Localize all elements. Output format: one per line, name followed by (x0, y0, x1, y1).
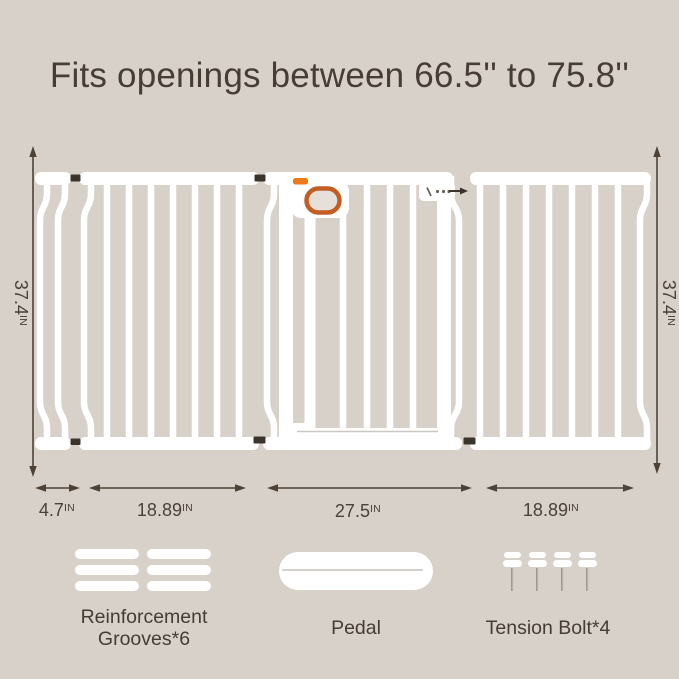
door-right-post (437, 172, 451, 450)
height-label-right: 37.4IN (657, 258, 679, 348)
groove-bar (75, 549, 139, 559)
pedal-graphic (279, 552, 433, 590)
tension-bolt-graphic (579, 552, 596, 591)
gate-illustration (35, 172, 651, 450)
product-infographic: Fits openings between 66.5'' to 75.8'' (0, 0, 679, 679)
handle-indicator-tab (293, 178, 308, 185)
gate-handle (291, 178, 349, 218)
tension-bolt-graphic (554, 552, 571, 591)
width-label-2: 18.89IN (125, 500, 205, 521)
tension-bolts-label: Tension Bolt*4 (472, 617, 624, 639)
gate-bars-right-panel (480, 180, 618, 440)
door-left-post (279, 172, 293, 450)
height-label-left: 37.4IN (9, 258, 31, 348)
tension-bolt-graphic (529, 552, 546, 591)
reinforcement-grooves-label: Reinforcement Grooves*6 (44, 606, 244, 650)
groove-bar (147, 565, 211, 575)
pedal-edge-line (282, 569, 423, 571)
width-arrow-1 (35, 484, 80, 491)
groove-bar (147, 581, 211, 591)
reinforcement-grooves-graphic (75, 549, 211, 591)
width-arrow-4 (486, 484, 634, 491)
width-label-1: 4.7IN (17, 500, 97, 521)
width-label-4: 18.89IN (511, 500, 591, 521)
groove-bar (75, 581, 139, 591)
tension-bolts-graphic (504, 552, 596, 591)
pedal-label: Pedal (280, 617, 432, 639)
groove-bar (75, 565, 139, 575)
width-arrow-3 (267, 484, 472, 491)
tension-bolt-graphic (504, 552, 521, 591)
gate-bars-left-panel (107, 180, 239, 440)
width-arrow-2 (89, 484, 246, 491)
groove-bar (147, 549, 211, 559)
handle-ring (307, 189, 340, 213)
door-latch-stile (305, 205, 316, 436)
width-label-3: 27.5IN (318, 501, 398, 522)
gate-bars-door (343, 180, 413, 434)
